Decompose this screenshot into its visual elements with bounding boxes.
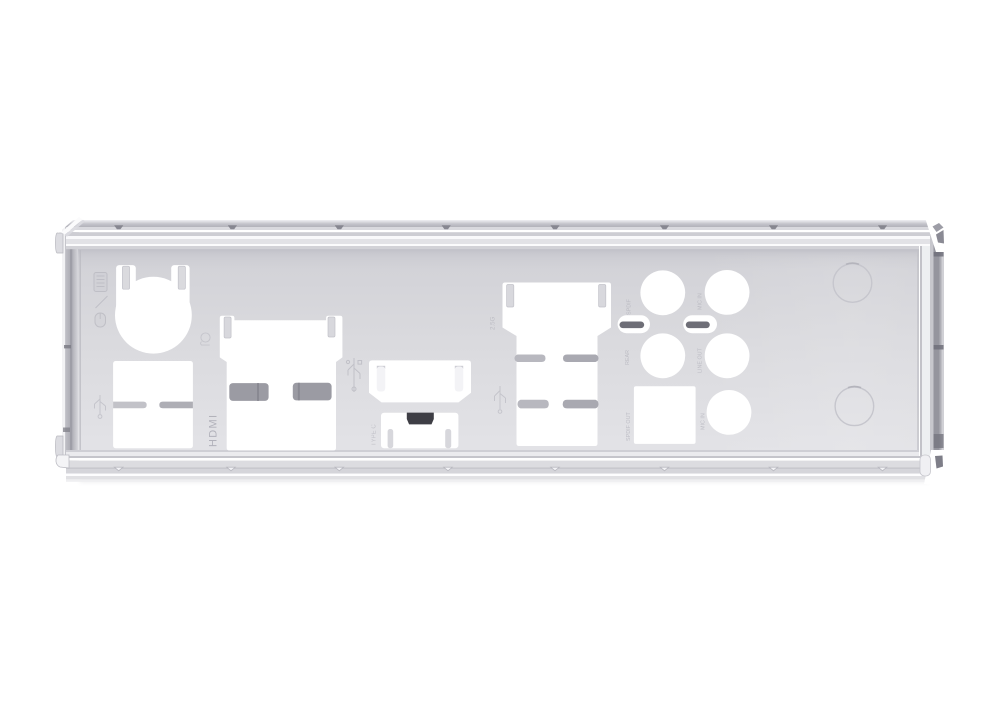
svg-text:REAR: REAR bbox=[625, 350, 631, 365]
svg-text:SPDIF: SPDIF bbox=[627, 298, 633, 315]
svg-text:TYPE C: TYPE C bbox=[372, 424, 378, 446]
svg-text:2.5G: 2.5G bbox=[490, 316, 497, 330]
svg-text:MIC IN: MIC IN bbox=[701, 413, 707, 430]
svg-text:HDMI: HDMI bbox=[208, 414, 220, 447]
svg-text:MIC IN: MIC IN bbox=[698, 293, 704, 310]
svg-text:SPDIF OUT: SPDIF OUT bbox=[626, 412, 632, 441]
svg-text:LINE OUT: LINE OUT bbox=[698, 347, 704, 373]
